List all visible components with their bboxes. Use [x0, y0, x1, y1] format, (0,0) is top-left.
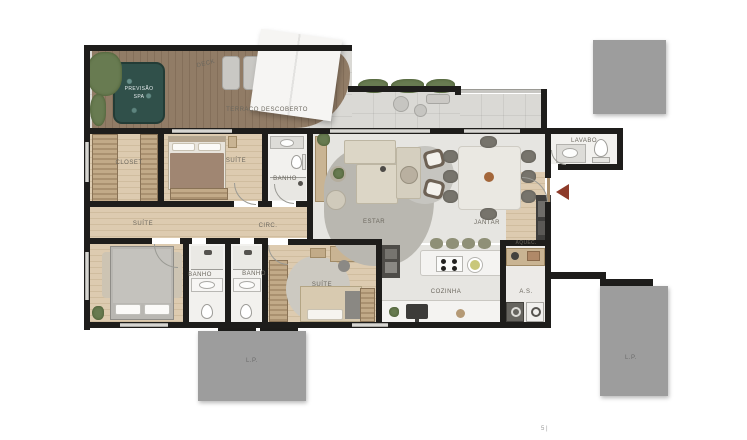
centerpiece [484, 172, 494, 182]
wall [376, 239, 382, 322]
microwave [385, 262, 397, 273]
burner [441, 266, 446, 271]
bed [168, 136, 226, 190]
wall [183, 238, 192, 244]
wardrobe [360, 288, 375, 322]
window [85, 252, 89, 300]
wall [348, 86, 461, 92]
room-label-as: A.S. [519, 289, 532, 295]
window [352, 323, 388, 327]
cooktop [436, 256, 463, 272]
shower-head-icon [244, 250, 252, 255]
wall [158, 134, 164, 201]
kitchen-counter [382, 300, 500, 322]
sink [280, 139, 294, 147]
railing [461, 89, 543, 93]
sink [239, 281, 255, 289]
burner [441, 259, 446, 264]
toilet [201, 304, 213, 319]
window [172, 129, 232, 133]
door-arc [274, 184, 294, 204]
terrace-floor [460, 94, 543, 128]
sink [199, 281, 215, 289]
wall [262, 134, 268, 201]
wall [551, 272, 606, 279]
wall [225, 244, 231, 322]
toilet [291, 155, 302, 169]
lounge-chair [222, 56, 240, 90]
water-heater [511, 252, 519, 260]
plant [389, 307, 399, 317]
stool [462, 238, 475, 249]
wall [558, 164, 623, 170]
pillow [307, 309, 343, 320]
room-label-banho-master: BANHO [273, 176, 297, 182]
stool [446, 238, 459, 249]
stool [430, 238, 443, 249]
page-mark: 5 | [541, 426, 548, 432]
sink-bowl [468, 258, 482, 272]
wall [600, 279, 653, 286]
floor-lamp [380, 166, 386, 172]
toilet [240, 304, 252, 319]
spa-label-line2: SPA [134, 94, 145, 100]
sofa-module [344, 140, 396, 164]
pillow [115, 304, 141, 315]
room-label-suite-master: SUÍTE [226, 158, 246, 164]
fruit-bowl [456, 309, 465, 318]
label-lp-right: L.P. [625, 355, 637, 361]
shelf-item [527, 251, 540, 261]
washer [506, 302, 524, 322]
blanket [170, 153, 224, 189]
dining-chair [443, 150, 458, 163]
terrace-bench [426, 94, 450, 104]
lp-shaft-bottom [198, 331, 306, 401]
wardrobe [140, 134, 158, 204]
pillow [198, 143, 221, 151]
dining-chair [480, 136, 497, 148]
room-label-suite-hall: SUÍTE [133, 221, 153, 227]
wall [541, 89, 547, 131]
room-label-estar: ESTAR [363, 219, 385, 225]
wall [545, 170, 551, 178]
room-label-circ: CIRC. [259, 223, 278, 229]
dining-chair [443, 170, 458, 183]
entry-arrow [556, 184, 569, 200]
desk-chair [338, 260, 350, 272]
pillow [144, 304, 170, 315]
washer-door [511, 307, 521, 317]
dryer [526, 302, 544, 322]
wall [500, 246, 506, 322]
wall [545, 128, 623, 134]
wall [90, 238, 152, 244]
wall [307, 134, 313, 245]
shower-head-icon [204, 250, 212, 255]
window [120, 323, 168, 327]
pouf [326, 190, 346, 210]
nightstand [228, 136, 237, 148]
wall [288, 239, 380, 245]
toilet-tank [302, 154, 306, 170]
plant [317, 133, 330, 146]
door-arc [234, 183, 256, 205]
burner [452, 266, 457, 271]
tv [406, 304, 428, 319]
sofa-module [356, 164, 398, 204]
wall [258, 201, 272, 207]
lp-shaft-right [600, 286, 668, 396]
floor-plan: PREVISÃO SPA [0, 0, 747, 440]
room-label-lavabo: LAVABO [571, 138, 597, 144]
dining-chair [521, 150, 536, 163]
wall [84, 45, 352, 51]
wall [545, 202, 551, 328]
pillow [172, 143, 195, 151]
room-label-banho3: BANHO [242, 271, 266, 277]
room-label-cozinha: COZINHA [431, 289, 462, 295]
burner [452, 259, 457, 264]
coffee-table [400, 166, 418, 184]
stool [478, 238, 491, 249]
shower-head-icon [298, 181, 303, 186]
dining-chair [443, 190, 458, 203]
pouf [393, 96, 409, 112]
room-label-jantar: JANTAR [474, 220, 500, 226]
window [464, 129, 520, 133]
dryer-door [531, 307, 541, 317]
wall [206, 238, 240, 244]
window [85, 142, 89, 182]
wall [545, 134, 551, 170]
label-aquecedor: AQUEC. [515, 240, 536, 246]
toilet-tank [592, 157, 610, 163]
oven [385, 249, 397, 259]
plant [92, 306, 104, 320]
room-label-suite3: SUÍTE [312, 282, 332, 288]
armchair-cushion [426, 181, 442, 196]
bed [300, 286, 362, 322]
gray-box-top-right [593, 40, 666, 114]
blanket [345, 291, 361, 319]
bench [310, 248, 326, 258]
wall [183, 244, 189, 322]
oven-column [382, 245, 400, 278]
room-label-terrace: TERRAÇO DESCOBERTO [226, 107, 308, 113]
wall [84, 201, 234, 207]
dining-chair [480, 208, 497, 220]
spa-label-line1: PREVISÃO [125, 86, 154, 92]
bed-bench [170, 188, 228, 200]
armchair-cushion [426, 151, 442, 166]
wall [296, 201, 313, 207]
room-label-closet: CLOSET [115, 160, 142, 166]
room-label-banho2: BANHO [188, 272, 212, 278]
pouf [414, 104, 427, 117]
plant [86, 52, 122, 96]
window [330, 129, 430, 133]
headboard [169, 137, 225, 142]
label-lp-bottom: L.P. [246, 358, 258, 364]
wardrobe [92, 134, 118, 204]
plant [90, 94, 106, 126]
plant [333, 168, 344, 179]
wall [262, 244, 268, 322]
